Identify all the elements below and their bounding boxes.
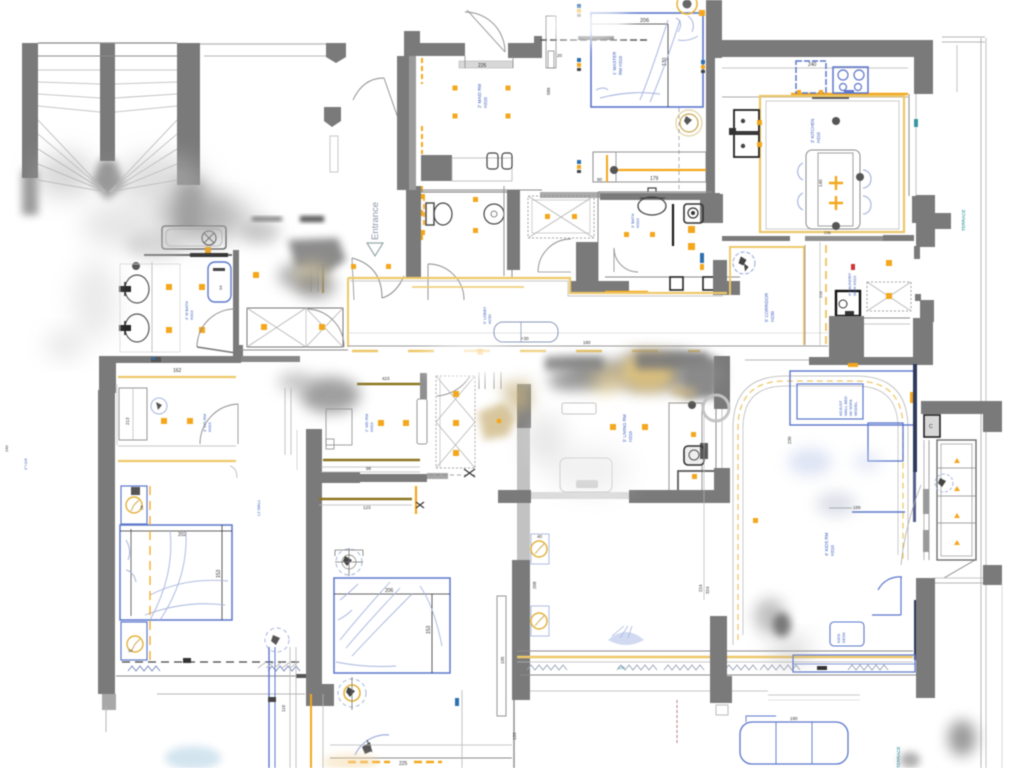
svg-text:423: 423: [382, 376, 390, 381]
svg-text:2' MAID RM: 2' MAID RM: [477, 84, 482, 108]
svg-text:324: 324: [705, 586, 710, 594]
svg-text:120: 120: [618, 665, 625, 670]
svg-text:MODEL: MODEL: [853, 401, 858, 416]
svg-text:202: 202: [178, 532, 187, 538]
svg-text:WCH H310: WCH H310: [852, 275, 857, 296]
svg-text:1"=1/4: 1"=1/4: [23, 458, 28, 470]
svg-text:RM H310: RM H310: [618, 55, 623, 75]
svg-text:H310: H310: [207, 422, 212, 432]
svg-text:5' LIVING RM: 5' LIVING RM: [622, 414, 627, 442]
svg-text:94: 94: [218, 285, 223, 290]
svg-text:236: 236: [824, 230, 831, 235]
svg-text:4' KIDS RM: 4' KIDS RM: [824, 532, 829, 556]
svg-text:105: 105: [500, 656, 505, 664]
svg-text:230: 230: [787, 436, 792, 444]
svg-text:123: 123: [363, 505, 371, 510]
svg-text:240: 240: [4, 445, 9, 452]
svg-text:218: 218: [818, 291, 823, 298]
svg-text:H310: H310: [483, 97, 488, 108]
svg-text:H310: H310: [635, 218, 640, 228]
svg-text:162: 162: [173, 368, 182, 374]
svg-text:206: 206: [640, 18, 649, 24]
svg-text:208: 208: [532, 581, 537, 589]
svg-text:TERRACE: TERRACE: [896, 746, 901, 768]
svg-text:C: C: [929, 424, 933, 430]
svg-text:H310: H310: [189, 310, 194, 320]
svg-text:20: 20: [557, 53, 563, 58]
svg-text:225: 225: [399, 761, 408, 767]
svg-text:H310: H310: [369, 422, 374, 432]
svg-text:116: 116: [281, 704, 286, 712]
svg-text:190: 190: [790, 716, 798, 721]
svg-text:H310: H310: [816, 132, 821, 143]
svg-text:L2 WALL: L2 WALL: [256, 499, 261, 516]
svg-text:H310: H310: [830, 545, 835, 556]
svg-text:3' KITCHEN: 3' KITCHEN: [810, 119, 815, 143]
svg-text:+30: +30: [521, 336, 529, 341]
svg-text:224: 224: [698, 584, 703, 592]
svg-text:1' MASTER: 1' MASTER: [612, 51, 617, 75]
svg-text:H310: H310: [628, 431, 633, 442]
svg-text:98: 98: [366, 466, 372, 471]
svg-text:240: 240: [808, 62, 817, 68]
svg-text:H230: H230: [487, 314, 492, 324]
svg-text:180: 180: [583, 340, 591, 345]
svg-text:213: 213: [125, 417, 130, 425]
svg-text:28: 28: [139, 505, 144, 510]
svg-text:133: 133: [512, 732, 517, 740]
svg-text:90: 90: [597, 177, 603, 182]
svg-text:H230: H230: [770, 311, 775, 322]
svg-text:586: 586: [546, 87, 551, 95]
svg-text:34: 34: [128, 648, 133, 653]
svg-text:Entrance: Entrance: [370, 202, 381, 240]
svg-text:140: 140: [818, 179, 823, 187]
svg-text:226: 226: [478, 63, 487, 69]
svg-text:40: 40: [537, 534, 543, 539]
svg-text:DESK: DESK: [841, 632, 846, 643]
svg-text:153: 153: [216, 569, 222, 578]
svg-text:5' CORRIDOR: 5' CORRIDOR: [764, 292, 769, 322]
svg-text:TERRACE: TERRACE: [961, 209, 966, 231]
svg-text:179: 179: [650, 176, 659, 182]
svg-text:153: 153: [426, 625, 432, 634]
svg-text:206: 206: [385, 588, 394, 594]
